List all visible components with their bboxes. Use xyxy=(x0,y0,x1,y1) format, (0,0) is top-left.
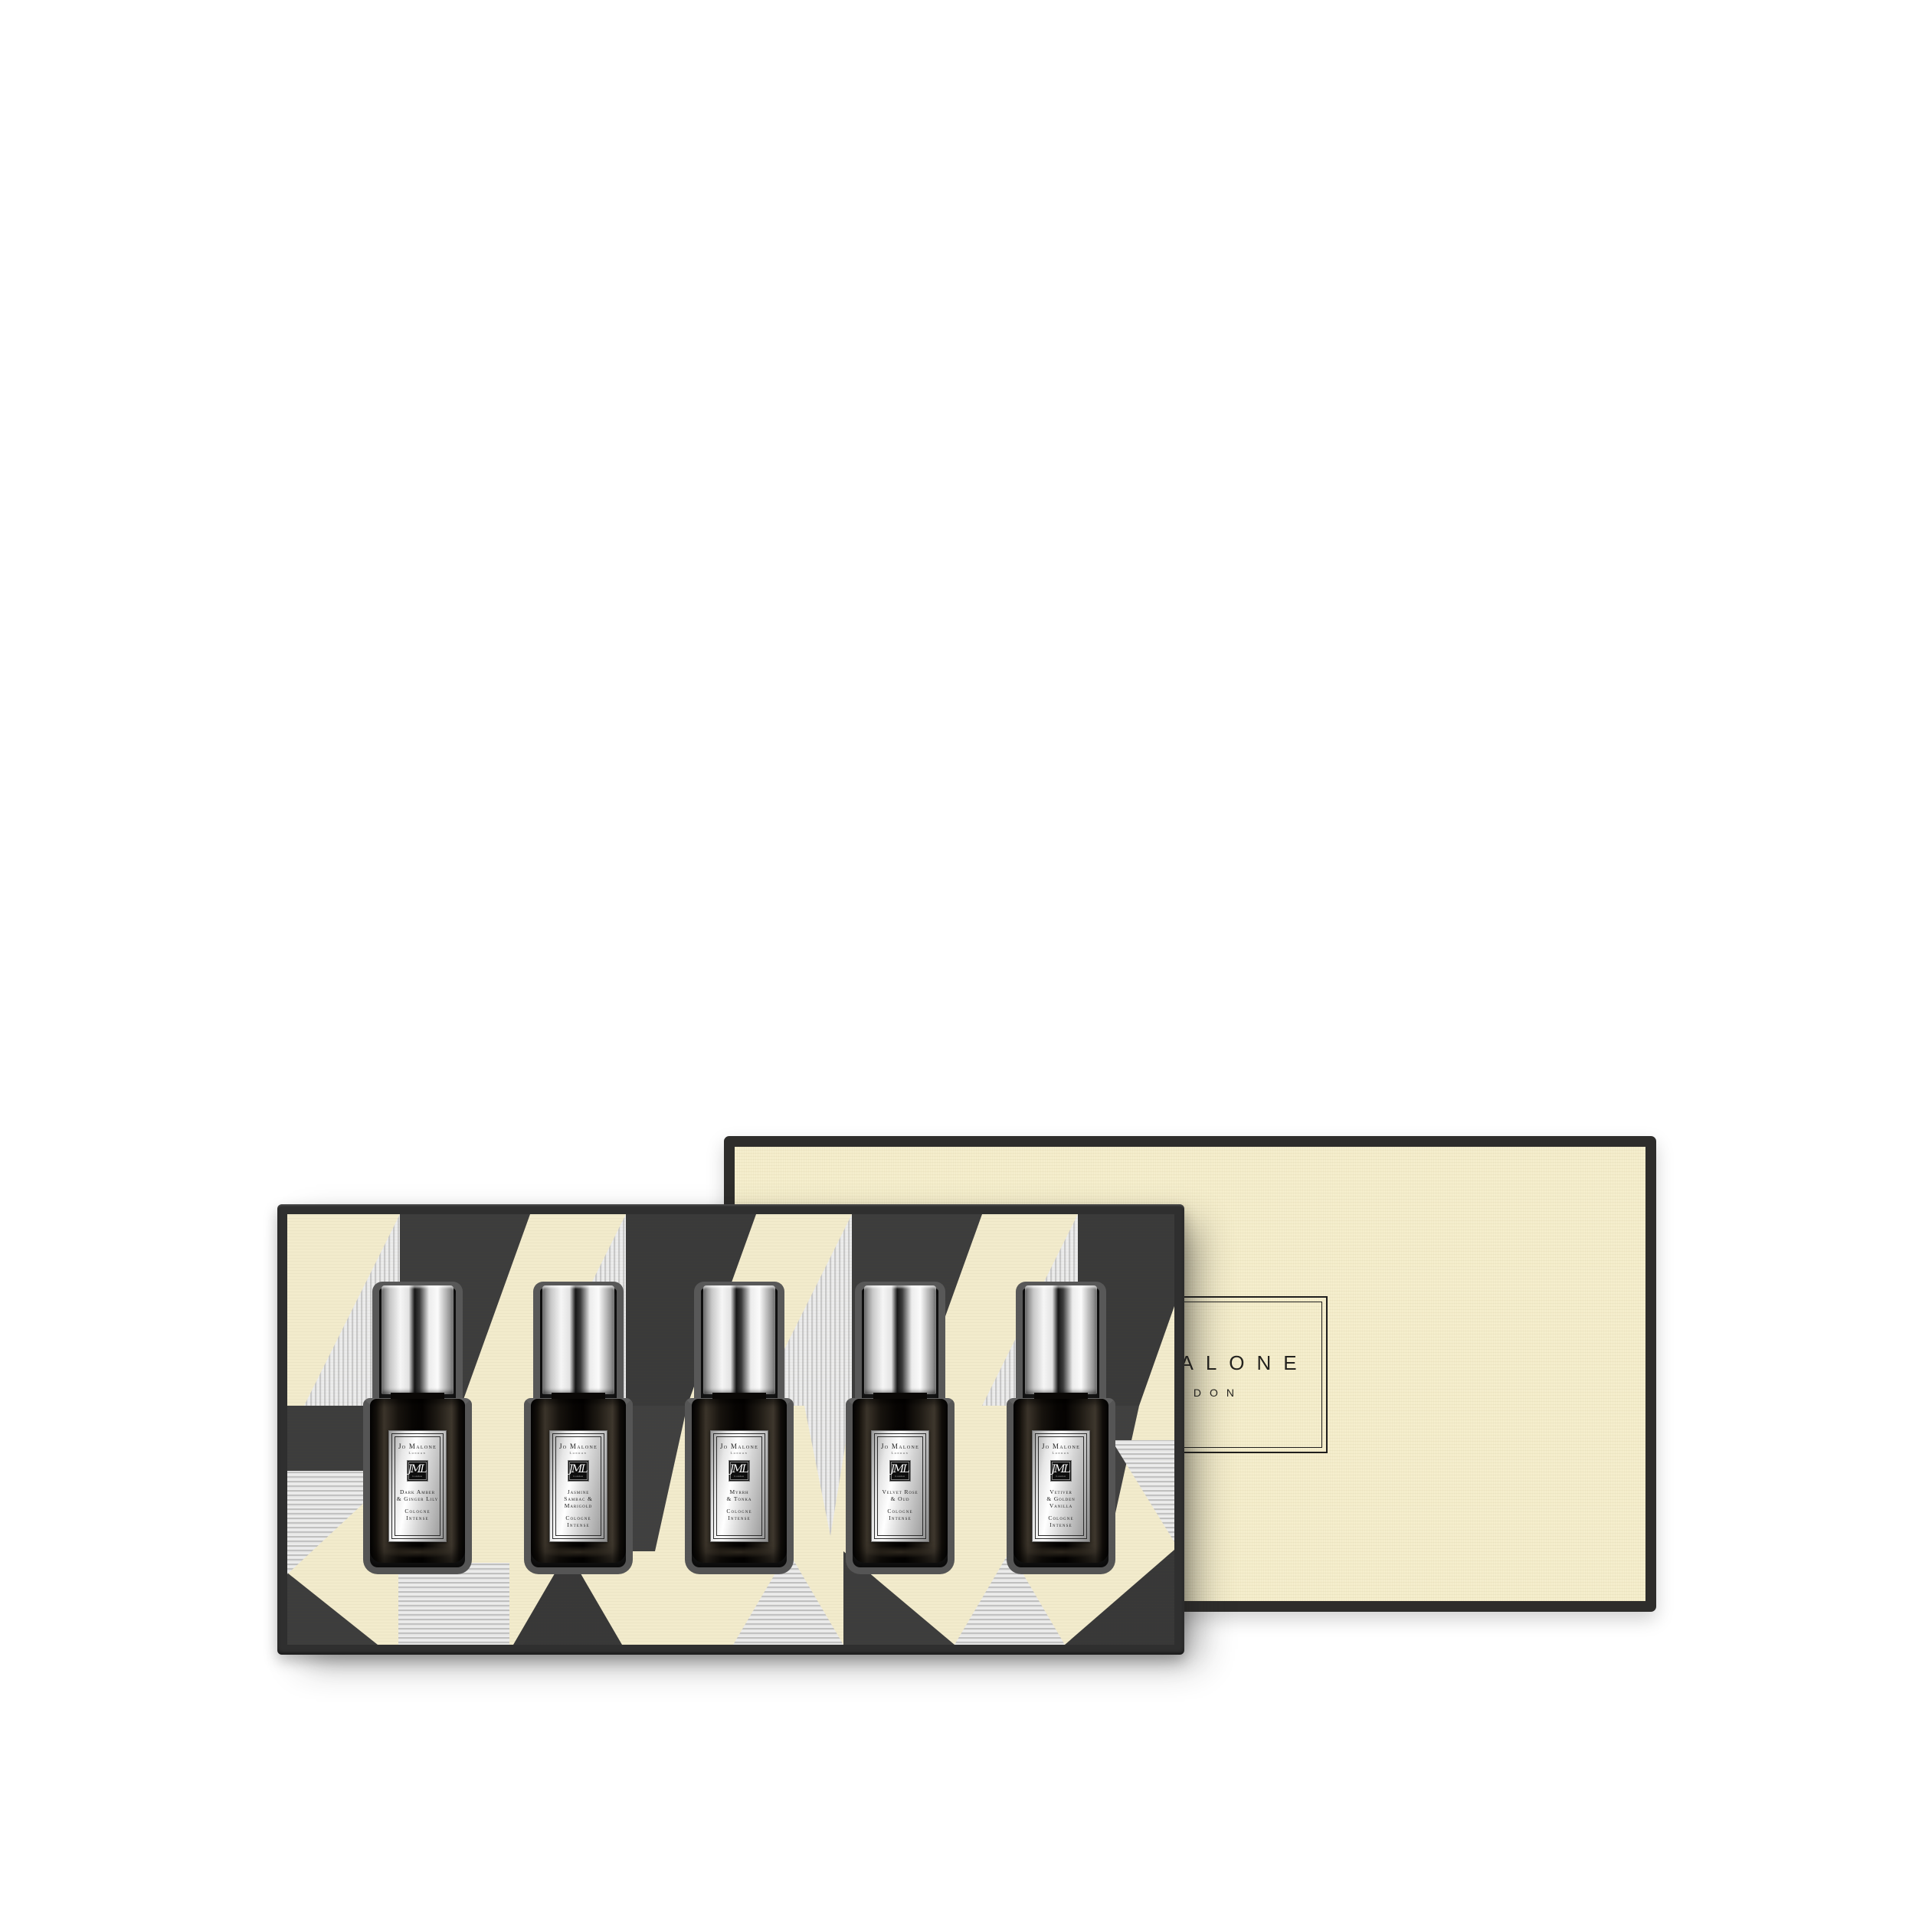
label-brand: Jo Malone xyxy=(398,1442,437,1450)
label-city: London xyxy=(570,1451,588,1455)
label-city: London xyxy=(409,1451,427,1455)
jml-monogram: JML London xyxy=(729,1460,750,1482)
monogram-letters: JML xyxy=(570,1464,586,1475)
bottle-label: Jo Malone London JML London Vetiver & Go… xyxy=(1032,1430,1090,1542)
label-frame-outer: Jo Malone London JML London Dark Amber &… xyxy=(391,1433,444,1539)
bottle-unit: Jo Malone London JML London Jasmine Samb… xyxy=(517,1214,640,1597)
label-frame-inner: Jo Malone London JML London Myrrh & Tonk… xyxy=(716,1436,762,1536)
jml-monogram: JML London xyxy=(407,1460,428,1482)
bottle-unit: Jo Malone London JML London Vetiver & Go… xyxy=(1000,1214,1122,1597)
label-product-type: Cologne Intense xyxy=(404,1508,430,1521)
bottle-label: Jo Malone London JML London Jasmine Samb… xyxy=(549,1430,607,1542)
label-product-type: Cologne Intense xyxy=(726,1508,752,1521)
bottle-label: Jo Malone London JML London Dark Amber &… xyxy=(388,1430,447,1542)
bottle-cap xyxy=(542,1285,614,1394)
monogram-letters: JML xyxy=(731,1464,747,1475)
label-frame-inner: Jo Malone London JML London Dark Amber &… xyxy=(395,1436,440,1536)
label-product-type: Cologne Intense xyxy=(887,1508,912,1521)
bottle-cap xyxy=(864,1285,936,1394)
label-brand: Jo Malone xyxy=(881,1442,919,1450)
bottle-label: Jo Malone London JML London Myrrh & Tonk… xyxy=(710,1430,768,1542)
label-product-type: Cologne Intense xyxy=(565,1514,591,1528)
monogram-city: London xyxy=(1056,1475,1066,1478)
label-frame-outer: Jo Malone London JML London Myrrh & Tonk… xyxy=(713,1433,765,1539)
bottle-cap xyxy=(381,1285,454,1394)
label-frame-inner: Jo Malone London JML London Velvet Rose … xyxy=(877,1436,923,1536)
monogram-city: London xyxy=(574,1475,584,1478)
bottle-cap xyxy=(703,1285,775,1394)
label-frame-outer: Jo Malone London JML London Vetiver & Go… xyxy=(1035,1433,1087,1539)
label-frame-outer: Jo Malone London JML London Jasmine Samb… xyxy=(552,1433,604,1539)
label-fragrance-name: Dark Amber & Ginger Lily xyxy=(397,1488,438,1502)
label-brand: Jo Malone xyxy=(1042,1442,1080,1450)
label-city: London xyxy=(892,1451,909,1455)
label-fragrance-name: Myrrh & Tonka xyxy=(727,1488,752,1502)
label-frame-inner: Jo Malone London JML London Jasmine Samb… xyxy=(555,1436,601,1536)
label-frame-inner: Jo Malone London JML London Vetiver & Go… xyxy=(1038,1436,1084,1536)
bottle-cap xyxy=(1025,1285,1097,1394)
product-tray: Jo Malone London JML London Dark Amber &… xyxy=(277,1204,1184,1655)
label-fragrance-name: Jasmine Sambac & Marigold xyxy=(564,1488,592,1509)
label-fragrance-name: Vetiver & Golden Vanilla xyxy=(1046,1488,1075,1509)
label-city: London xyxy=(1053,1451,1070,1455)
monogram-city: London xyxy=(735,1475,745,1478)
jml-monogram: JML London xyxy=(889,1460,911,1482)
monogram-city: London xyxy=(413,1475,423,1478)
bottle-label: Jo Malone London JML London Velvet Rose … xyxy=(871,1430,929,1542)
product-photo: Jo Malone London xyxy=(0,0,1932,1932)
bottle-unit: Jo Malone London JML London Velvet Rose … xyxy=(839,1214,961,1597)
jml-monogram: JML London xyxy=(568,1460,589,1482)
monogram-letters: JML xyxy=(409,1464,425,1475)
pattern-board: Jo Malone London JML London Dark Amber &… xyxy=(287,1214,1174,1645)
label-brand: Jo Malone xyxy=(559,1442,598,1450)
jml-monogram: JML London xyxy=(1050,1460,1072,1482)
monogram-city: London xyxy=(896,1475,905,1478)
label-brand: Jo Malone xyxy=(720,1442,758,1450)
label-fragrance-name: Velvet Rose & Oud xyxy=(882,1488,918,1502)
label-product-type: Cologne Intense xyxy=(1048,1514,1073,1528)
bottle-unit: Jo Malone London JML London Myrrh & Tonk… xyxy=(678,1214,801,1597)
monogram-letters: JML xyxy=(1053,1464,1069,1475)
label-frame-outer: Jo Malone London JML London Velvet Rose … xyxy=(874,1433,926,1539)
bottle-unit: Jo Malone London JML London Dark Amber &… xyxy=(356,1214,479,1597)
label-city: London xyxy=(731,1451,748,1455)
monogram-letters: JML xyxy=(892,1464,908,1475)
